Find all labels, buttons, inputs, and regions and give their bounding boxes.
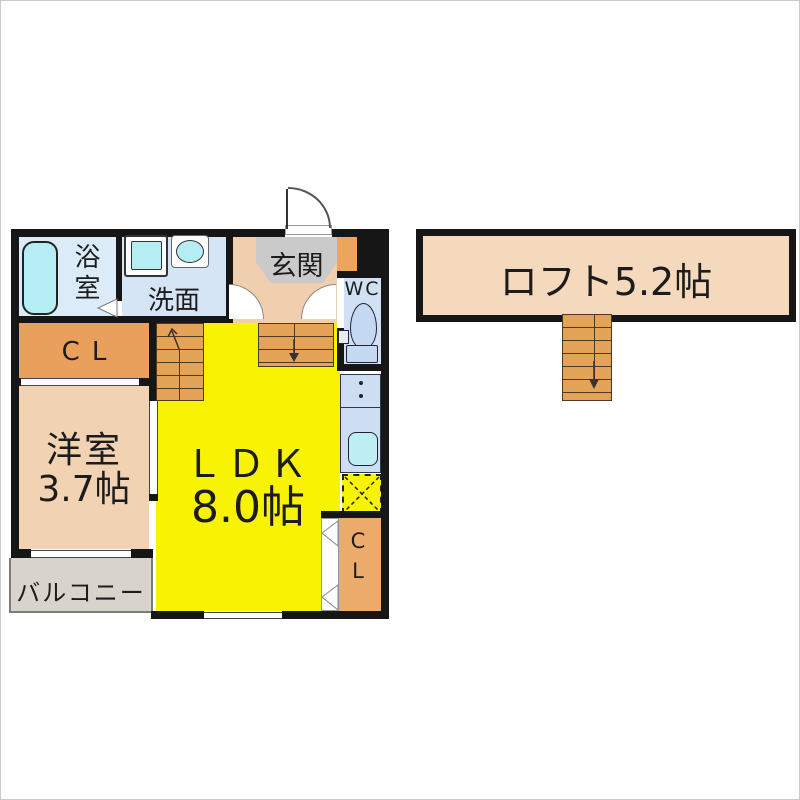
closet-right-label: CL xyxy=(346,529,370,599)
entrance-label: 玄関 xyxy=(256,244,337,283)
wall-right xyxy=(381,229,389,619)
shoe-cabinet-block xyxy=(337,231,359,275)
wall-balcony-post-right xyxy=(131,549,153,558)
kitchen-sink xyxy=(348,432,378,466)
ldk-size: 8.0帖 xyxy=(156,471,340,535)
western-room-size: 3.7帖 xyxy=(19,460,149,512)
wall-bath-bottom xyxy=(11,316,233,323)
wall-cl-divider-post-right xyxy=(139,378,151,386)
stairs-middle-arrow xyxy=(287,337,301,363)
wall-left xyxy=(11,229,19,558)
washing-machine-tub xyxy=(131,241,162,270)
loft-label: ロフト5.2帖 xyxy=(423,251,789,306)
closet-right-door-triangle-bottom xyxy=(321,584,339,611)
wall-bottom-a xyxy=(151,611,204,619)
sliding-door-closet-left xyxy=(21,378,139,386)
wash-basin xyxy=(176,240,204,263)
wc-door-opening xyxy=(337,278,344,328)
wc-label: WC xyxy=(344,278,381,300)
wall-topright-block xyxy=(357,229,389,277)
toilet-bowl xyxy=(350,303,377,349)
wall-wc-top xyxy=(337,271,389,278)
stove-dot-1 xyxy=(359,381,363,385)
washroom-label: 洗面 xyxy=(122,280,226,317)
toilet-tank xyxy=(346,345,378,363)
kitchen-counter-divider xyxy=(340,407,381,408)
bathroom-label: 浴室 xyxy=(67,243,104,319)
wall-cl-divider-post-left xyxy=(11,378,21,386)
stairs-left-arrow xyxy=(165,325,183,351)
toilet-handle xyxy=(338,330,349,344)
stove-dot-2 xyxy=(359,394,363,398)
floor-plan: 浴室 洗面 玄関 WC CL 洋室 3.7帖 ＬＤＫ 8.0帖 バルコニー CL… xyxy=(0,0,800,800)
stairs-loft-arrow xyxy=(587,361,601,391)
wall-wc-bottom xyxy=(337,364,389,371)
wall-stairs-left xyxy=(149,316,156,403)
closet-left-label: CL xyxy=(19,337,149,367)
entrance-door-arc xyxy=(288,187,331,228)
wall-balcony-post-left xyxy=(11,549,31,558)
window-ldk-bottom xyxy=(204,612,282,619)
window-western-balcony xyxy=(31,550,131,558)
balcony-label: バルコニー xyxy=(9,573,153,608)
stairs-left-divider xyxy=(179,349,180,401)
wall-bottom-b xyxy=(282,611,389,619)
refrigerator-space-cross xyxy=(342,474,382,514)
bathtub xyxy=(22,241,58,315)
